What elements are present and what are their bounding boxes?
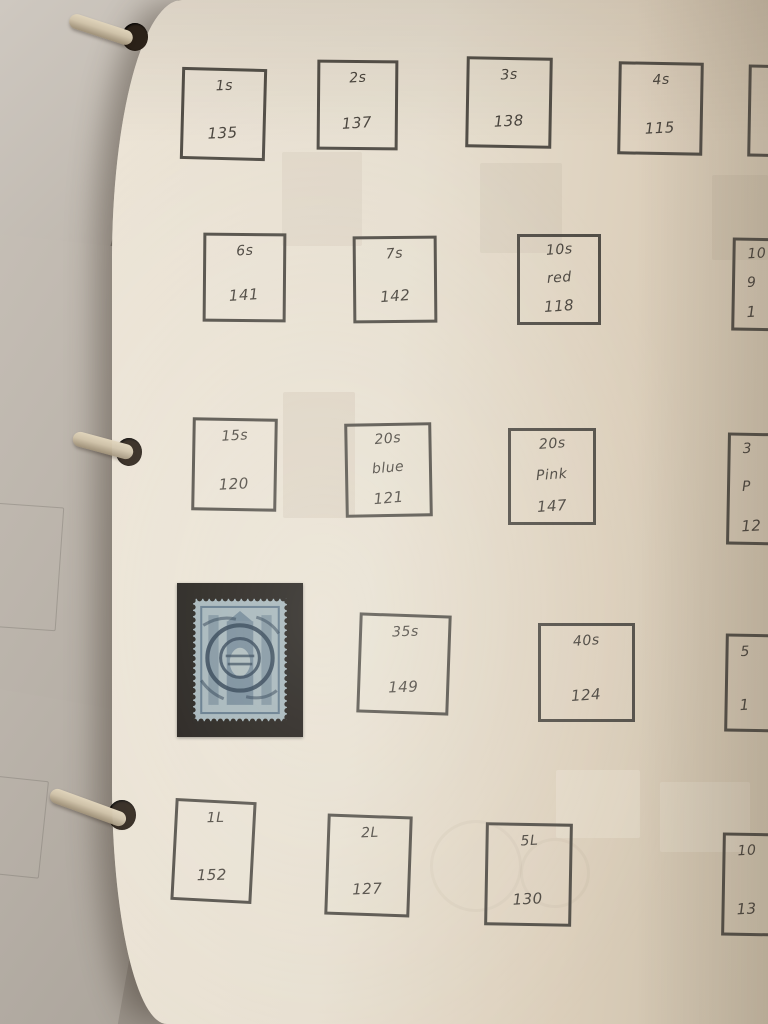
catalog-number-label: 147 [536, 496, 567, 516]
catalog-number-label: 142 [379, 286, 410, 306]
stamp-box: 20s Pink 147 [508, 428, 596, 525]
denomination-label: 15s [221, 427, 248, 444]
stamp-box-partial: 5 1 [724, 633, 768, 732]
denomination-label: 2L [361, 825, 379, 842]
catalog-number-label: 130 [513, 889, 544, 909]
stamp-box: 40s 124 [538, 623, 635, 722]
denomination-label: 3s [500, 67, 518, 84]
denomination-label: 40s [573, 632, 601, 650]
faint-box-on-under-page [0, 503, 64, 631]
denomination-label: 4s [652, 72, 670, 89]
catalog-number-label: 135 [208, 123, 239, 142]
show-through-mark [282, 152, 362, 246]
denomination-label: 10 [737, 842, 757, 859]
denomination-label: 10s [545, 241, 573, 259]
denomination-label: 1s [215, 78, 233, 95]
stamp-box: 1L 152 [170, 798, 256, 904]
catalog-number-label: 13 [736, 899, 757, 918]
stamp-mount [177, 583, 303, 737]
catalog-number-label: 137 [342, 113, 373, 133]
used-blue-stamp [189, 594, 291, 726]
color-label: 9 [747, 274, 757, 290]
stamp-box: 15s 120 [191, 417, 278, 511]
stamp-box: 7s 142 [353, 236, 438, 324]
denomination-label: 10 [747, 245, 767, 262]
stamp-box: 5L 130 [484, 822, 573, 927]
stamp-box: 1s 135 [180, 67, 267, 161]
denomination-label: 5L [520, 833, 539, 850]
catalog-number-label: 115 [645, 118, 676, 138]
denomination-label: 6s [236, 242, 254, 259]
catalog-number-label: 12 [741, 516, 762, 535]
catalog-number-label: 118 [543, 296, 574, 316]
color-label: blue [372, 459, 406, 478]
catalog-number-label: 120 [219, 474, 250, 494]
catalog-number-label: 1 [746, 303, 757, 322]
stamp-box-partial: 10 13 [721, 832, 768, 936]
stamp-box: 35s 149 [356, 612, 451, 715]
stamp-box: 10s red 118 [517, 234, 601, 325]
catalog-number-label: 124 [571, 685, 602, 705]
catalog-number-label: 152 [197, 866, 227, 885]
stamp-box-partial: 10 9 1 [731, 237, 768, 331]
stamp-album-photo: 1s 135 2s 137 3s 138 4s 115 6s 141 7s 14… [0, 0, 768, 1024]
catalog-number-label: 121 [373, 488, 405, 509]
stamp-box: 4s 115 [617, 61, 704, 155]
color-label: P [742, 479, 752, 495]
catalog-number-label: 141 [229, 285, 260, 305]
stamp-box: 6s 141 [203, 233, 287, 323]
catalog-number-label: 1 [739, 696, 750, 715]
stamp-box: 2s 137 [317, 60, 399, 151]
stamp-box: 2L 127 [324, 814, 412, 918]
denomination-label: 2s [349, 69, 367, 86]
denomination-label: 3 [742, 441, 752, 457]
denomination-label: 7s [386, 245, 404, 262]
denomination-label: 5 [740, 644, 750, 660]
stamp-box-partial: 3 P 12 [726, 432, 768, 545]
denomination-label: 1L [206, 810, 224, 826]
color-label: Pink [536, 465, 568, 483]
denomination-label: 35s [392, 624, 419, 641]
catalog-number-label: 149 [388, 677, 419, 696]
stamp-box: 3s 138 [465, 56, 553, 148]
denomination-label: 20s [374, 430, 402, 448]
stamp-box: 20s blue 121 [344, 422, 433, 518]
color-label: red [546, 269, 572, 287]
stamp-box-partial [747, 64, 768, 157]
catalog-number-label: 127 [352, 879, 383, 898]
catalog-number-label: 138 [493, 111, 524, 131]
denomination-label: 20s [538, 435, 566, 453]
